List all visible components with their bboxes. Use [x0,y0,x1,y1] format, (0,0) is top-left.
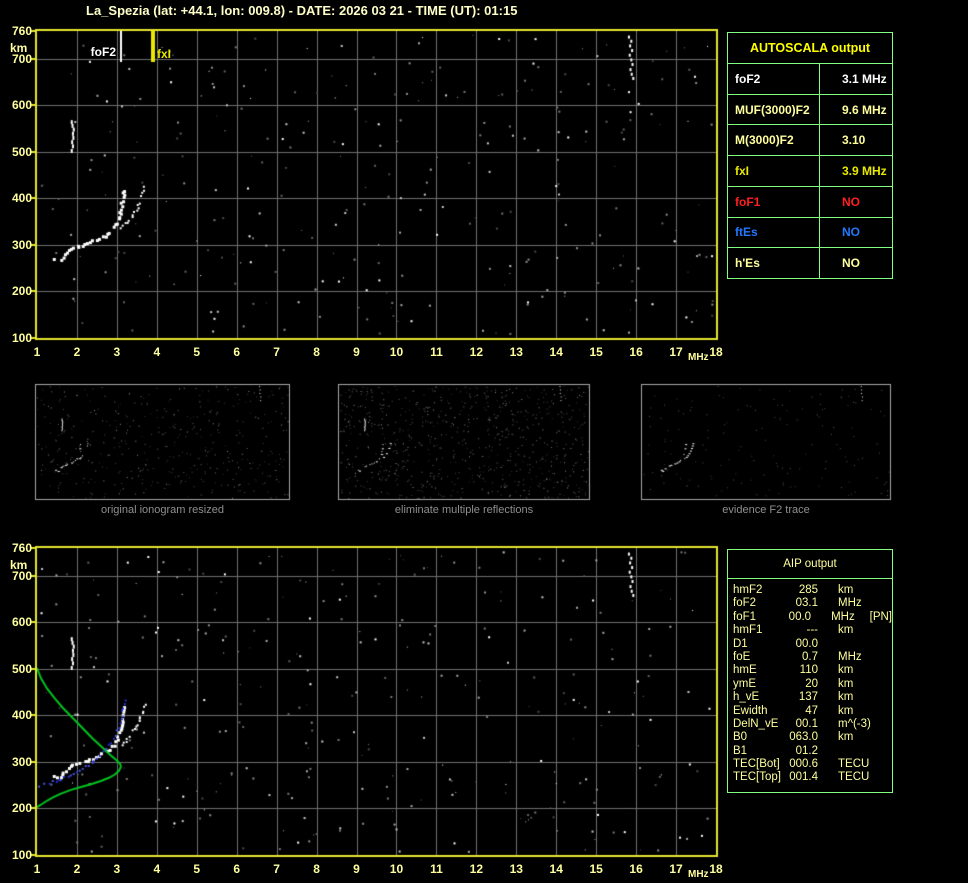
aip-label: foF2 [733,597,781,610]
x-tick-label: 10 [386,345,406,359]
aip-row-h_vE: h_vE137km [733,691,892,704]
aip-row-DelN_vE: DelN_vE00.1m^(-3) [733,718,892,731]
x-tick-label: 8 [307,345,327,359]
x-tick-label: 11 [426,345,446,359]
x-tick-label: 3 [107,862,127,876]
aip-unit: km [838,664,880,677]
autoscala-output-table: AUTOSCALA output foF23.1 MHzMUF(3000)F29… [727,32,893,279]
aip-row-foE: foE0.7MHz [733,651,892,664]
aip-label: B1 [733,745,781,758]
x-tick-label: 1 [27,345,47,359]
x-tick-label: 15 [586,862,606,876]
caption-eliminate-reflections: eliminate multiple reflections [338,504,590,516]
aip-unit: TECU [838,771,880,784]
x-tick-label: 2 [67,862,87,876]
aip-label: B0 [733,731,781,744]
autoscala-row-M(3000)F2: M(3000)F23.10 [728,125,892,156]
x-tick-label: 10 [386,862,406,876]
x-tick-label: 18 [706,345,726,359]
aip-value: --- [781,624,818,637]
autoscala-row-value: NO [820,187,892,217]
aip-unit: km [838,731,880,744]
aip-label: hmF1 [733,624,781,637]
aip-value: 20 [781,678,818,691]
x-tick-label: 4 [147,862,167,876]
y-tick-label: 200 [2,801,32,815]
y-axis-unit-label: km [10,41,32,55]
x-tick-label: 5 [187,345,207,359]
aip-row-ymE: ymE20km [733,678,892,691]
autoscala-row-value: NO [820,248,892,278]
aip-unit: km [838,691,880,704]
y-tick-label: 500 [2,662,32,676]
aip-label: hmE [733,664,781,677]
autoscala-table-header: AUTOSCALA output [728,33,892,64]
autoscala-row-value: 9.6 MHz [820,95,892,125]
x-tick-label: 13 [506,345,526,359]
aip-unit: km [838,705,880,718]
x-axis-unit-label: MHz [688,351,709,365]
aip-value: 03.1 [781,597,818,610]
aip-label: TEC[Bot] [733,758,781,771]
aip-label: h_vE [733,691,781,704]
x-tick-label: 12 [466,345,486,359]
x-tick-label: 3 [107,345,127,359]
aip-label: foF1 [733,611,777,624]
aip-label: foE [733,651,781,664]
aip-unit: m^(-3) [838,718,880,731]
x-tick-label: 16 [626,862,646,876]
caption-evidence-f2-trace: evidence F2 trace [641,504,891,516]
aip-value: 00.1 [781,718,818,731]
aip-value: 00.0 [781,638,818,651]
aip-unit: km [838,624,880,637]
aip-value: 01.2 [781,745,818,758]
aip-row-B0: B0063.0km [733,731,892,744]
aip-unit: MHz [838,651,880,664]
y-tick-label: 600 [2,98,32,112]
autoscala-row-label: foF2 [728,64,820,94]
y-axis-unit-label: km [10,558,32,572]
x-tick-label: 11 [426,862,446,876]
x-tick-label: 14 [546,862,566,876]
x-tick-label: 14 [546,345,566,359]
y-tick-label: 100 [2,848,32,862]
aip-value: 137 [781,691,818,704]
x-tick-label: 9 [347,345,367,359]
y-tick-label: 760 [2,24,32,38]
aip-value: 001.4 [781,771,818,784]
autoscala-row-value: NO [820,218,892,248]
y-tick-label: 400 [2,191,32,205]
aip-row-hmF1: hmF1---km [733,624,892,637]
aip-row-Ewidth: Ewidth47km [733,705,892,718]
aip-value: 285 [781,584,818,597]
y-tick-label: 100 [2,331,32,345]
x-tick-label: 8 [307,862,327,876]
x-tick-label: 9 [347,862,367,876]
x-tick-label: 7 [267,862,287,876]
aip-unit: km [838,584,880,597]
autoscala-row-label: M(3000)F2 [728,125,820,155]
aip-label: ymE [733,678,781,691]
x-tick-label: 13 [506,862,526,876]
x-tick-label: 17 [666,862,686,876]
y-tick-label: 600 [2,615,32,629]
aip-row-hmE: hmE110km [733,664,892,677]
autoscala-row-label: MUF(3000)F2 [728,95,820,125]
autoscala-row-label: h'Es [728,248,820,278]
autoscala-row-MUF(3000)F2: MUF(3000)F29.6 MHz [728,95,892,126]
autoscala-row-label: fxI [728,156,820,186]
autoscala-row-fxI: fxI3.9 MHz [728,156,892,187]
aip-unit [838,638,880,651]
aip-row-hmF2: hmF2285km [733,584,892,597]
aip-row-foF2: foF203.1MHz [733,597,892,610]
autoscala-table-rows: foF23.1 MHzMUF(3000)F29.6 MHzM(3000)F23.… [728,64,892,278]
y-tick-label: 760 [2,541,32,555]
x-tick-label: 2 [67,345,87,359]
autoscala-row-value: 3.9 MHz [820,156,892,186]
aip-row-TEC[Top]: TEC[Top]001.4TECU [733,771,892,784]
aip-value: 000.6 [781,758,818,771]
fxI-marker-label: fxI [157,47,171,61]
caption-original-ionogram: original ionogram resized [35,504,290,516]
aip-value: 063.0 [781,731,818,744]
autoscala-row-foF1: foF1NO [728,187,892,218]
aip-value: 47 [781,705,818,718]
aip-row-D1: D100.0 [733,638,892,651]
autoscala-row-value: 3.10 [820,125,892,155]
aip-row-B1: B101.2 [733,745,892,758]
aip-label: hmF2 [733,584,781,597]
aip-value: 0.7 [781,651,818,664]
autoscala-row-h'Es: h'EsNO [728,248,892,278]
aip-unit: MHz [831,611,870,624]
y-tick-label: 300 [2,755,32,769]
y-tick-label: 400 [2,708,32,722]
autoscala-row-label: foF1 [728,187,820,217]
autoscala-row-ftEs: ftEsNO [728,218,892,249]
autoscala-row-label: ftEs [728,218,820,248]
aip-label: D1 [733,638,781,651]
aip-unit [838,745,880,758]
aip-label: Ewidth [733,705,781,718]
aip-table-header: AIP output [728,550,892,579]
aip-row-foF1: foF100.0MHz[PN] [733,611,892,624]
y-tick-label: 500 [2,145,32,159]
autoscala-row-value: 3.1 MHz [820,64,892,94]
aip-table-rows: hmF2285kmfoF203.1MHzfoF100.0MHz[PN]hmF1-… [728,579,892,785]
aip-label: TEC[Top] [733,771,781,784]
x-tick-label: 18 [706,862,726,876]
aip-unit: TECU [838,758,880,771]
x-tick-label: 6 [227,345,247,359]
x-tick-label: 16 [626,345,646,359]
y-tick-label: 300 [2,238,32,252]
x-tick-label: 15 [586,345,606,359]
aip-row-TEC[Bot]: TEC[Bot]000.6TECU [733,758,892,771]
x-tick-label: 5 [187,862,207,876]
x-axis-unit-label: MHz [688,868,709,882]
autoscala-row-foF2: foF23.1 MHz [728,64,892,95]
aip-unit: MHz [838,597,880,610]
x-tick-label: 7 [267,345,287,359]
foF2-marker-label: foF2 [70,45,116,59]
aip-extra: [PN] [870,611,892,624]
y-tick-label: 200 [2,284,32,298]
x-tick-label: 4 [147,345,167,359]
x-tick-label: 17 [666,345,686,359]
aip-value: 110 [781,664,818,677]
aip-value: 00.0 [777,611,811,624]
page-title: La_Spezia (lat: +44.1, lon: 009.8) - DAT… [86,3,517,18]
x-tick-label: 1 [27,862,47,876]
x-tick-label: 6 [227,862,247,876]
x-tick-label: 12 [466,862,486,876]
aip-unit: km [838,678,880,691]
aip-output-table: AIP output hmF2285kmfoF203.1MHzfoF100.0M… [727,549,893,793]
aip-label: DelN_vE [733,718,781,731]
